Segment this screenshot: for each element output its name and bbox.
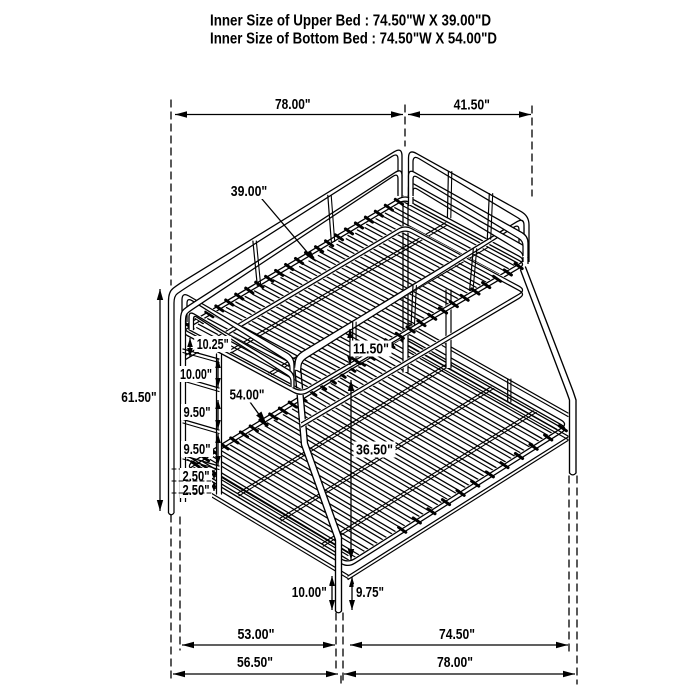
svg-text:61.50": 61.50" bbox=[121, 390, 156, 406]
svg-text:53.00": 53.00" bbox=[238, 627, 275, 643]
svg-text:36.50": 36.50" bbox=[356, 443, 393, 459]
svg-text:9.50": 9.50" bbox=[184, 405, 211, 421]
svg-text:11.50": 11.50" bbox=[353, 342, 389, 358]
svg-text:Inner Size of Bottom Bed : 74.: Inner Size of Bottom Bed : 74.50"W X 54.… bbox=[210, 31, 497, 48]
svg-text:2.50": 2.50" bbox=[183, 483, 210, 499]
svg-text:54.00": 54.00" bbox=[230, 388, 265, 404]
svg-text:39.00": 39.00" bbox=[231, 184, 268, 200]
svg-text:56.50": 56.50" bbox=[237, 655, 273, 671]
svg-text:9.50": 9.50" bbox=[184, 442, 211, 458]
svg-text:74.50": 74.50" bbox=[439, 627, 475, 643]
svg-text:78.00": 78.00" bbox=[275, 97, 311, 113]
svg-text:9.75": 9.75" bbox=[356, 585, 384, 601]
svg-text:Inner Size of Upper Bed : 74.5: Inner Size of Upper Bed : 74.50"W X 39.0… bbox=[210, 13, 491, 30]
svg-text:78.00": 78.00" bbox=[437, 655, 473, 671]
svg-text:41.50": 41.50" bbox=[454, 98, 490, 114]
svg-text:10.00": 10.00" bbox=[292, 585, 327, 601]
svg-text:10.25": 10.25" bbox=[197, 337, 229, 353]
svg-text:10.00": 10.00" bbox=[180, 367, 212, 383]
